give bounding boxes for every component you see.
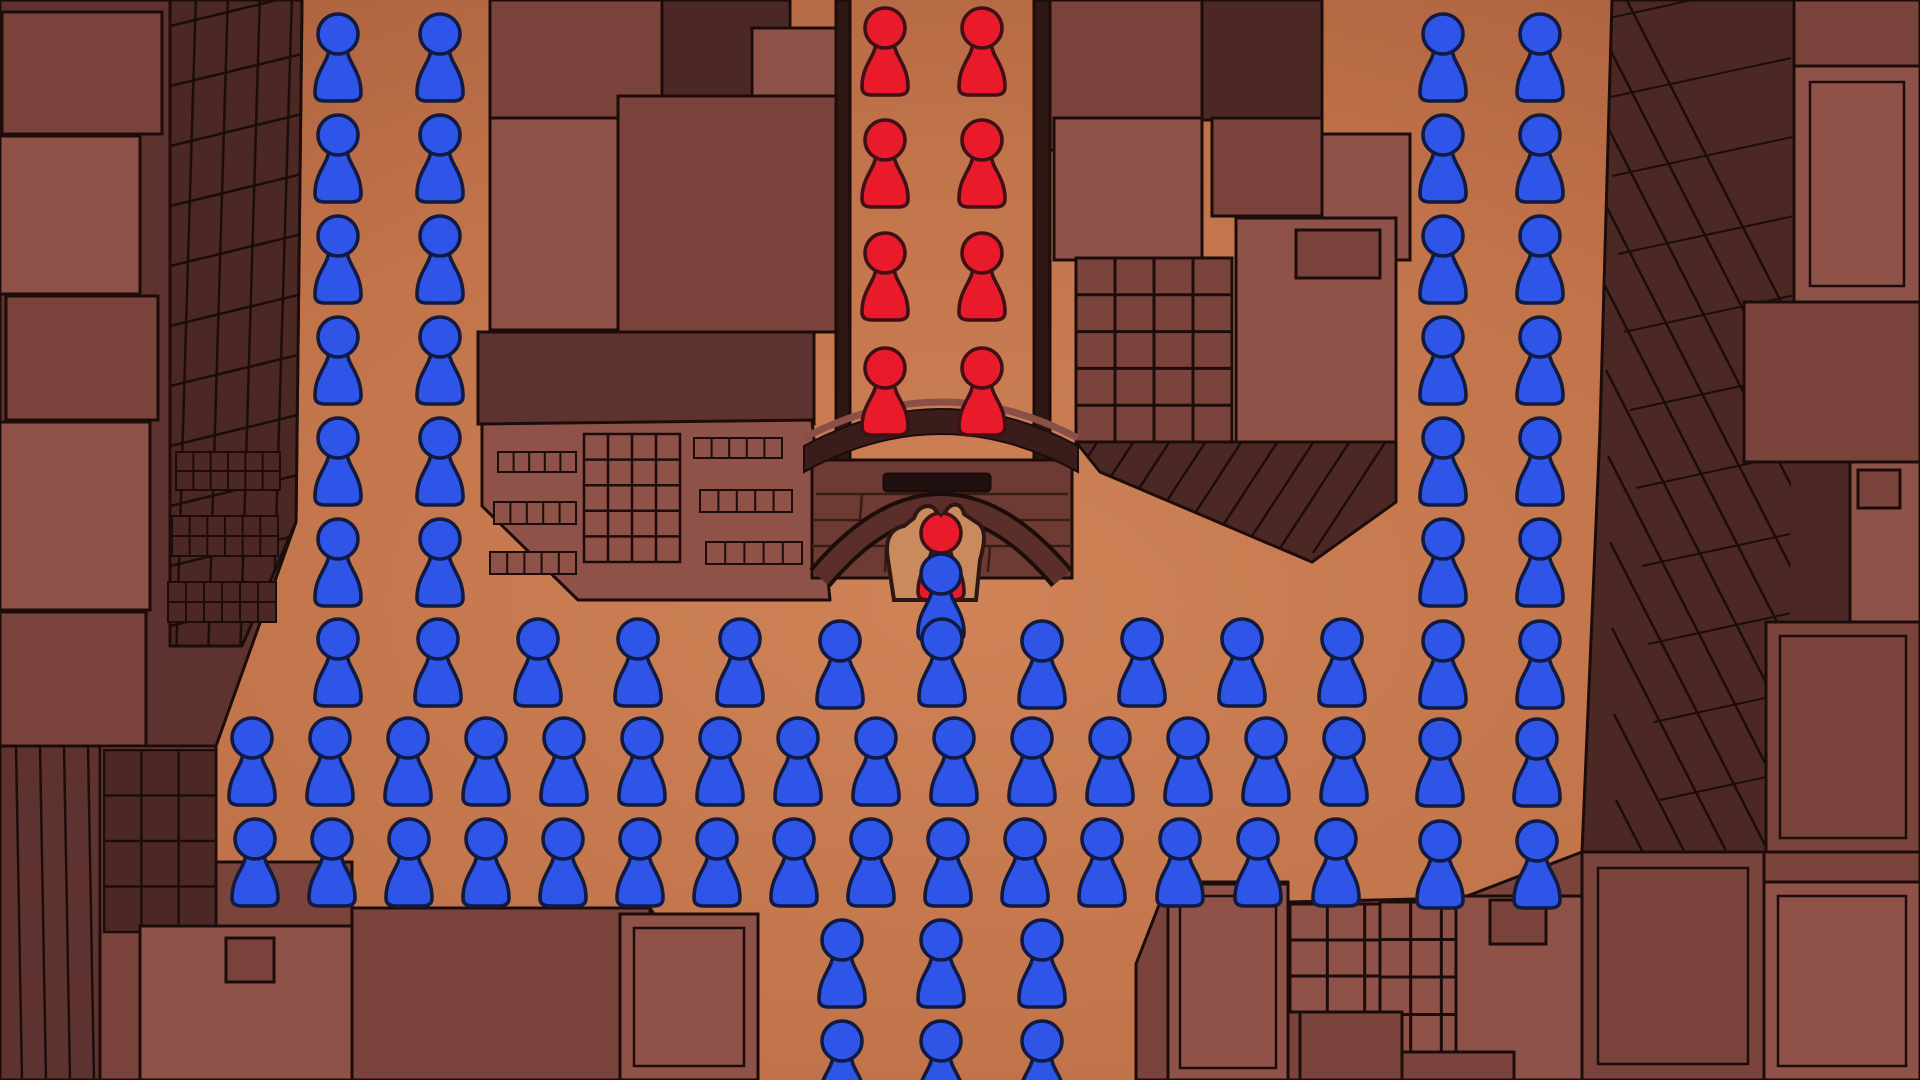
window-grid <box>1076 258 1232 442</box>
window-grid <box>172 516 278 556</box>
building-block <box>0 136 140 294</box>
building-block <box>1054 118 1202 260</box>
window-grid <box>498 452 576 472</box>
building-block <box>1582 852 1764 1080</box>
building-block <box>1296 230 1380 278</box>
building-block <box>352 908 650 1080</box>
scene-canvas <box>0 0 1920 1080</box>
building-block <box>1212 118 1322 216</box>
building-block <box>1034 0 1050 460</box>
building-block <box>1794 0 1920 66</box>
building-block <box>620 914 758 1080</box>
building-block <box>490 118 618 330</box>
building-block <box>1858 470 1900 508</box>
building-block <box>226 938 274 982</box>
building-block <box>0 612 146 746</box>
building-block <box>752 28 836 96</box>
building-block <box>1766 622 1920 852</box>
blue-pawn-figure <box>819 1021 865 1080</box>
building-block <box>1402 1052 1514 1080</box>
blue-bottom-street <box>819 920 1065 1080</box>
window-grid <box>694 438 782 458</box>
building-block <box>1300 1012 1402 1080</box>
window-grid <box>584 434 680 562</box>
building-block <box>1202 0 1322 120</box>
window-grid <box>168 582 276 622</box>
building-block <box>618 96 836 332</box>
building-block <box>1764 882 1920 1080</box>
blue-pawn-figure <box>1019 1021 1065 1080</box>
window-grid <box>104 750 216 932</box>
window-grid <box>494 502 576 524</box>
window-grid <box>490 552 576 574</box>
building-block <box>1794 66 1920 302</box>
window-grid <box>176 452 280 490</box>
building-block <box>0 422 150 610</box>
building-block <box>2 12 162 134</box>
building-block <box>0 746 100 1080</box>
city-crowd-illustration <box>0 0 1920 1080</box>
building-block <box>884 474 990 491</box>
building-block <box>1744 302 1920 462</box>
window-grid <box>706 542 802 564</box>
window-grid <box>700 490 792 512</box>
blue-pawn-figure <box>918 1021 964 1080</box>
building-block <box>6 296 158 420</box>
building-block <box>836 0 850 466</box>
building-block <box>1168 884 1288 1080</box>
building-block <box>478 332 814 424</box>
